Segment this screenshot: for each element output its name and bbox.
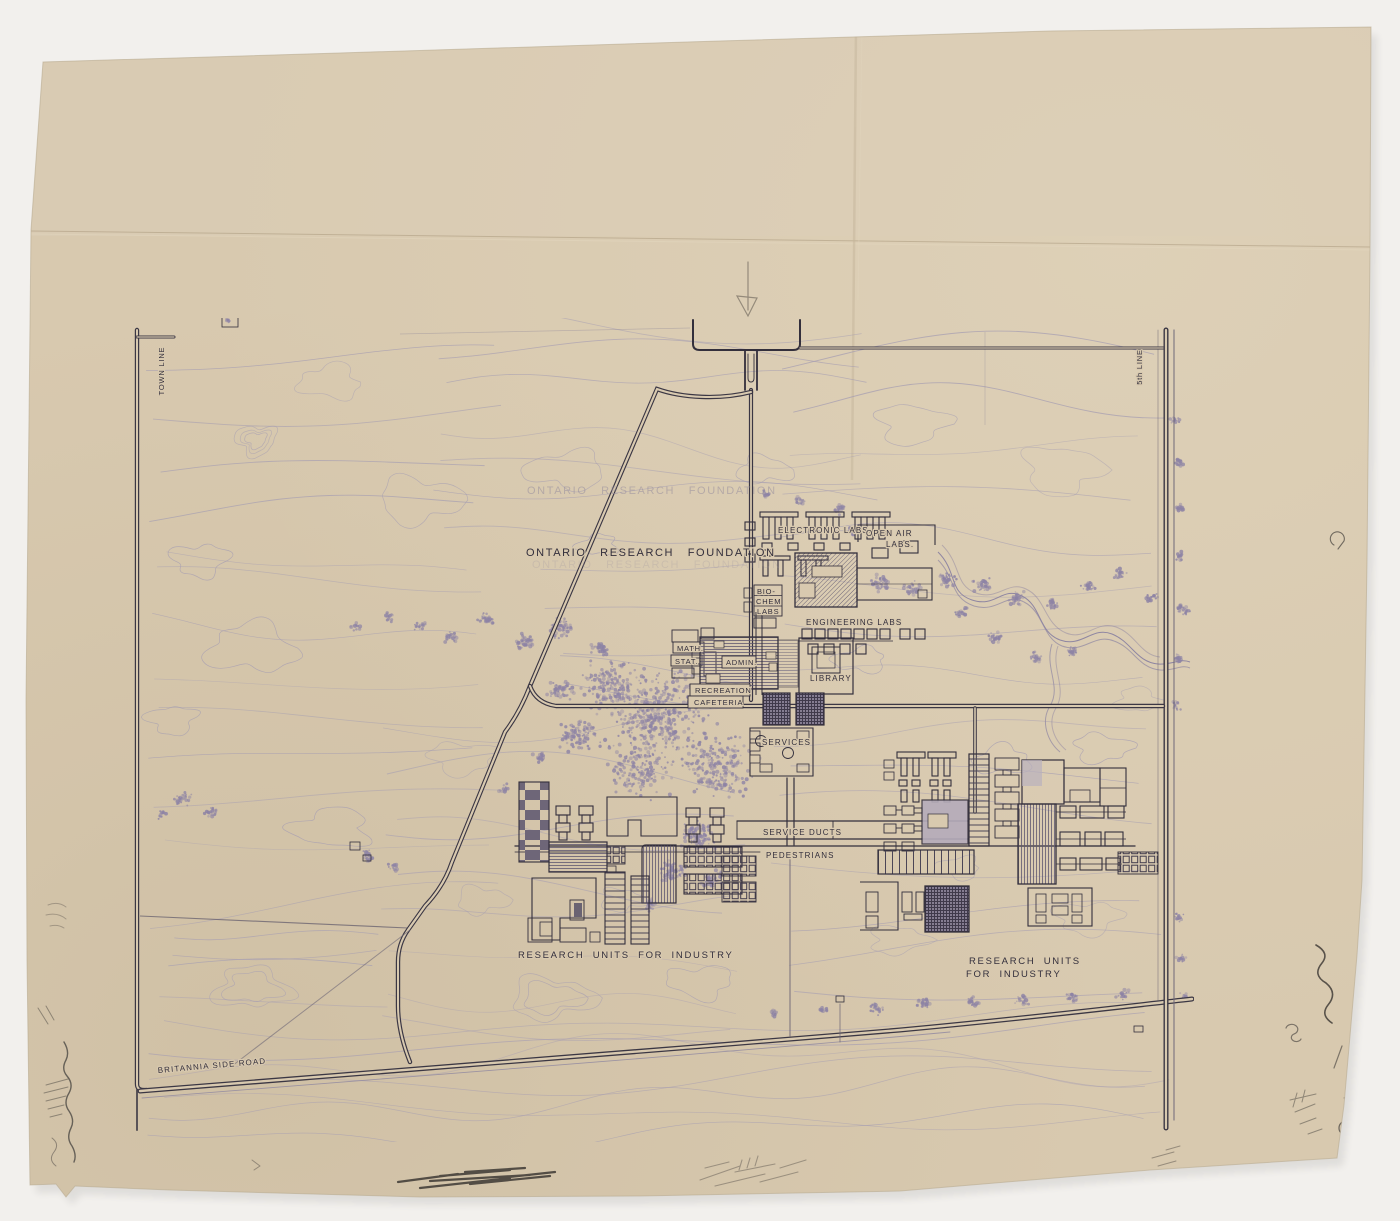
label-title: ONTARIO RESEARCH FOUNDATION [526, 547, 776, 559]
label-admin: ADMIN. [726, 658, 757, 667]
site-plan-sheet: ONTARIO RESEARCH FOUNDATION ONTARIO RESE… [0, 0, 1400, 1221]
label-recreation: RECREATION [695, 686, 752, 695]
label-bio-3: LABS [757, 607, 779, 616]
label-math: MATH. [677, 644, 704, 653]
label-town-line: TOWN LINE [157, 347, 166, 396]
label-research-right-1: RESEARCH UNITS [969, 956, 1081, 967]
label-cafeteria: CAFETERIA [694, 698, 743, 707]
label-fifth-line: 5th LINE [1135, 349, 1144, 385]
label-open-air-2: LABS. [886, 540, 914, 549]
paper-top-band [0, 0, 1400, 236]
label-research-left: RESEARCH UNITS FOR INDUSTRY [518, 950, 734, 961]
label-title-ghost-2: ONTARIO RESEARCH FOUNDATION [532, 559, 782, 571]
label-title-ghost: ONTARIO RESEARCH FOUNDATION [527, 485, 777, 497]
pencil-tick [1352, 1108, 1358, 1118]
label-services: SERVICES [762, 738, 811, 747]
label-engineering-labs: ENGINEERING LABS [806, 618, 902, 627]
paper-sheet: ONTARIO RESEARCH FOUNDATION ONTARIO RESE… [0, 0, 1400, 1221]
label-bio-2: CHEM [756, 597, 781, 606]
label-service-ducts: SERVICE DUCTS [763, 828, 842, 837]
label-stat: STAT. [675, 657, 698, 666]
label-research-right-2: FOR INDUSTRY [966, 969, 1061, 980]
pencil-circle [1351, 1133, 1365, 1147]
label-bio-1: BIO- [757, 587, 776, 596]
label-open-air-1: OPEN AIR [866, 529, 913, 538]
label-pedestrians: PEDESTRIANS [766, 851, 835, 860]
label-library: LIBRARY [810, 674, 852, 683]
label-electronic-labs: ELECTRONIC LABS. [778, 526, 872, 535]
